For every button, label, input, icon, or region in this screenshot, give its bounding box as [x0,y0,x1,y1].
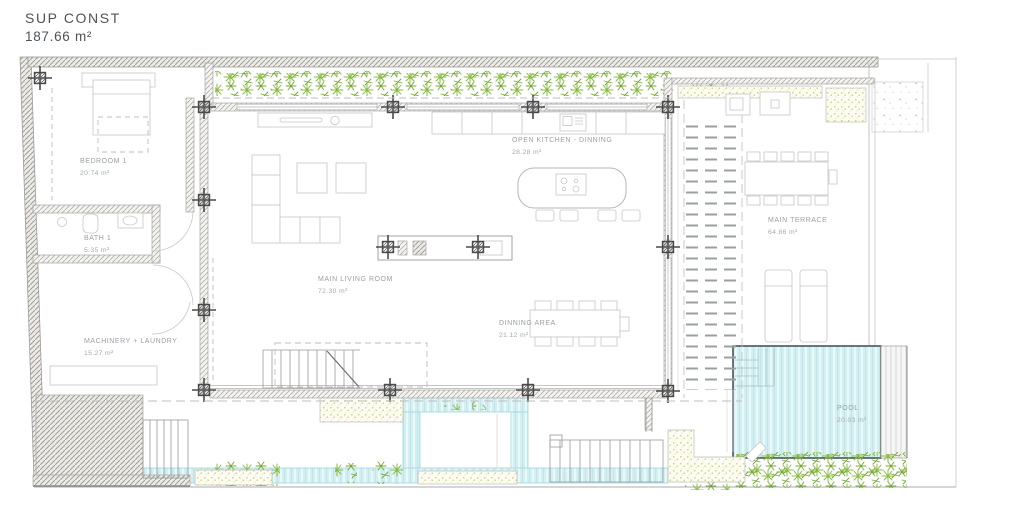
stool [560,210,578,221]
bed [82,73,155,135]
room-label-main-living-room-area: 72.30 m² [318,288,348,295]
floor-plan-page: SUP CONST 187.66 m² [0,0,1028,522]
stool [622,210,640,221]
armchair [297,163,327,193]
room-label-bedroom-1-name: BEDROOM 1 [80,158,127,165]
room-label-open-kitchen-area: 28.28 m² [512,149,542,156]
pergola [684,100,742,398]
stool [598,210,616,221]
water-channel-top [403,396,528,412]
room-label-machinery-laundry-area: 15.27 m² [84,350,114,357]
floor-plan-svg: BEDROOM 1 20.74 m² BATH 1 5.35 m² MACHIN… [0,0,1028,522]
room-label-dinning-area-name: DINNING AREA [499,320,556,327]
stool [536,210,554,221]
loungers [765,270,827,342]
room-label-main-terrace-area: 64.86 m² [768,229,798,236]
column-marker [192,298,216,322]
tv-console [378,236,512,260]
column-marker [656,235,680,259]
column-marker [656,379,680,403]
terrace-table [745,152,837,205]
kitchen-counter [432,112,665,134]
room-label-open-kitchen-name: OPEN KITCHEN - DINNING [512,137,612,144]
pool-basin [733,346,881,458]
terrace-corner-planter [826,88,866,122]
column-marker [381,95,405,119]
bath-fixtures [58,213,144,233]
south-planter-c [195,470,272,485]
column-marker [192,378,216,402]
room-label-dinning-area-area: 21.12 m² [499,332,529,339]
pool-deck [881,346,907,458]
room-label-bath-1-name: BATH 1 [84,235,111,242]
kitchen-island [518,168,640,221]
south-planter-b [418,471,517,484]
armchair [336,163,366,193]
room-label-pool-area: 20.03 m² [837,417,867,424]
stairs-main [263,350,360,388]
column-marker [192,188,216,212]
room-label-main-living-room-name: MAIN LIVING ROOM [318,276,393,283]
ramp-block [36,395,143,475]
room-label-main-terrace-name: MAIN TERRACE [768,217,827,224]
room-label-bedroom-1-area: 20.74 m² [80,170,110,177]
room-label-bath-1-area: 5.35 m² [84,247,110,254]
gravel-patch [872,82,923,132]
laundry-bench [50,366,157,385]
room-label-pool-name: POOL [837,405,859,412]
room-label-machinery-laundry-name: MACHINERY + LAUNDRY [84,338,178,345]
sideboard [258,113,372,127]
